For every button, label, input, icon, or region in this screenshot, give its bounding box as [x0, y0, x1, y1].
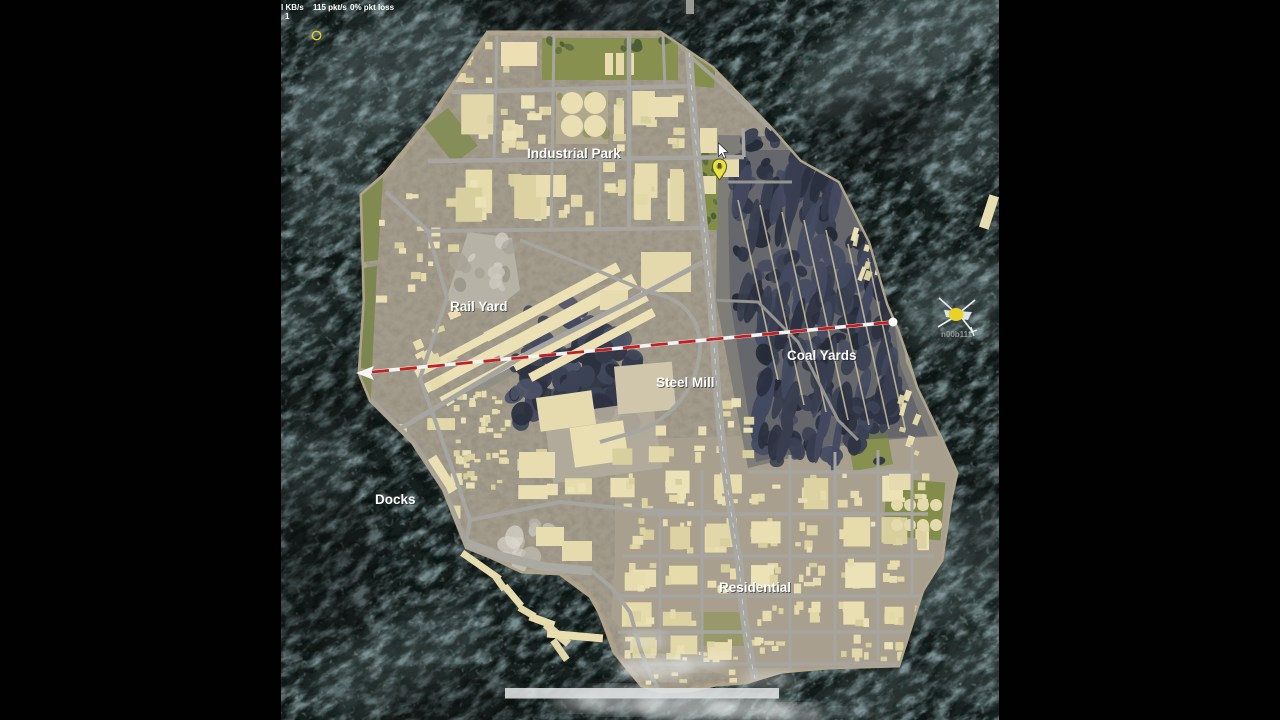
svg-text:Docks: Docks [375, 492, 416, 507]
svg-text:1: 1 [285, 12, 290, 21]
svg-text:Residential: Residential [719, 580, 791, 595]
svg-text:n00b111: n00b111 [941, 330, 973, 339]
svg-text:l KB/s: l KB/s [281, 3, 304, 12]
svg-text:0% pkt loss: 0% pkt loss [350, 3, 395, 12]
svg-text:115 pkt/s: 115 pkt/s [313, 3, 347, 12]
svg-text:Coal Yards: Coal Yards [787, 348, 857, 363]
svg-text:Industrial Park: Industrial Park [527, 146, 621, 161]
svg-text:Rail Yard: Rail Yard [450, 299, 508, 314]
svg-text:Steel Mill: Steel Mill [656, 375, 715, 390]
